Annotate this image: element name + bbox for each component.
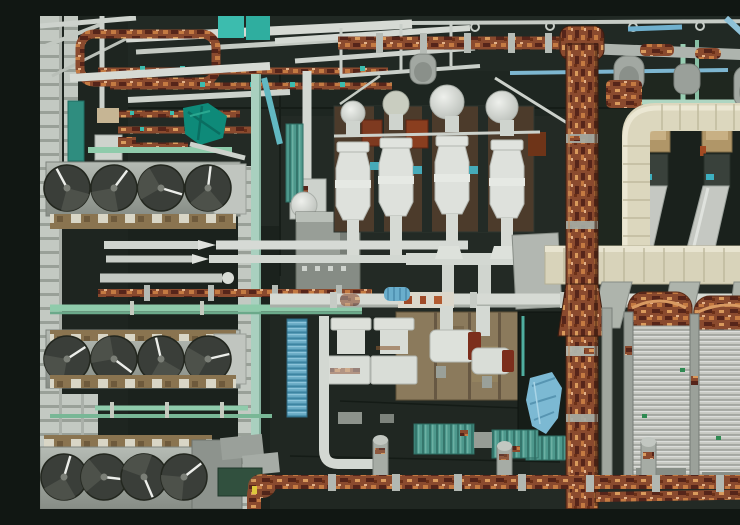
rust-red-box (528, 132, 546, 156)
downpipe (390, 216, 402, 259)
finned-body (698, 330, 740, 480)
rust-elbow (606, 80, 642, 108)
side-rail (624, 312, 633, 480)
teal-ribbed-panel (286, 124, 303, 202)
teal-panel (68, 101, 84, 161)
gray-side-pipe (602, 308, 612, 484)
terminal-strip (50, 214, 236, 229)
downpipe (347, 220, 359, 259)
white-canister (472, 348, 514, 374)
cyan-panel (246, 16, 270, 40)
top-rail (410, 21, 740, 23)
riser-flare (558, 284, 606, 336)
terminal-strip (50, 375, 236, 388)
cyan-panel (218, 16, 244, 38)
fan-bank-top (40, 156, 246, 229)
industrial-rooftop-scene (40, 16, 740, 509)
fan-bank-middle (40, 328, 246, 391)
terminal-strip (44, 435, 212, 447)
side-rail (690, 314, 699, 484)
rust-run-pipe-2 (596, 494, 740, 497)
blue-corrugated-panel (287, 319, 307, 417)
rooftop-photo (40, 16, 740, 509)
teal-box (414, 424, 474, 454)
